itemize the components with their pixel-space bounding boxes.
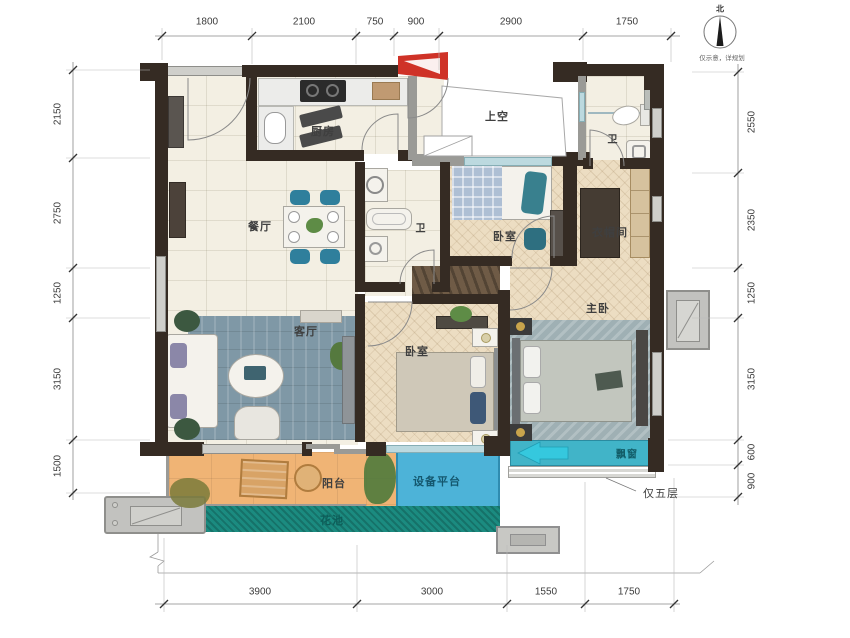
dim-left-5: 1500	[53, 455, 64, 477]
dim-left-1: 2150	[53, 103, 64, 125]
dim-top-6: 1750	[616, 17, 638, 28]
plan-linework	[0, 0, 850, 638]
bay-window-arrow-icon	[518, 442, 568, 464]
break-lines	[150, 534, 714, 573]
extension-lines	[66, 28, 744, 612]
ac-symbols	[132, 303, 698, 524]
room-label-equipment: 设备平台	[413, 473, 461, 489]
dim-left-2: 2750	[53, 202, 64, 224]
compass-north-label: 北	[716, 4, 724, 15]
room-label-bath-mid: 卫	[416, 220, 427, 235]
room-label-closet: 衣帽间	[592, 224, 628, 240]
entry-arrow-icon	[398, 52, 448, 80]
dim-top-5: 2900	[500, 17, 522, 28]
dim-bottom-1: 3900	[249, 587, 271, 598]
dim-top-3: 750	[367, 17, 384, 28]
dim-right-3: 1250	[747, 282, 758, 304]
room-label-bedroom-second: 卧室	[405, 343, 429, 359]
room-label-flower-bed: 花池	[320, 512, 344, 528]
dim-top-2: 2100	[293, 17, 315, 28]
room-label-dining: 餐厅	[248, 218, 272, 234]
room-label-living: 客厅	[294, 323, 318, 339]
floor-note-leader	[606, 478, 636, 491]
dim-bottom-3: 1550	[535, 587, 557, 598]
dim-right-2: 2350	[747, 209, 758, 231]
room-label-bedroom-top: 卧室	[493, 228, 517, 244]
dim-top-1: 1800	[196, 17, 218, 28]
room-label-balcony: 阳台	[322, 475, 346, 491]
room-label-bath-top: 卫	[608, 131, 619, 146]
dim-right-1: 2550	[747, 111, 758, 133]
compass-icon	[704, 16, 736, 48]
dim-left-4: 3150	[53, 368, 64, 390]
dim-right-6: 900	[747, 473, 758, 490]
dim-left-3: 1250	[53, 282, 64, 304]
room-label-master: 主卧	[586, 300, 610, 316]
dimension-lines	[73, 36, 738, 604]
room-label-kitchen: 厨房	[311, 123, 335, 139]
floor-note-label: 仅五层	[643, 485, 679, 501]
dim-right-5: 600	[747, 444, 758, 461]
dim-bottom-2: 3000	[421, 587, 443, 598]
room-label-bay-window: 飘窗	[616, 446, 638, 461]
dim-right-4: 3150	[747, 368, 758, 390]
dim-bottom-4: 1750	[618, 587, 640, 598]
dim-top-4: 900	[408, 17, 425, 28]
compass-note: 仅示意，详规划	[699, 52, 745, 62]
dimension-ticks	[69, 32, 742, 608]
floor-plan-canvas: 厨房 上空 卫 餐厅 卫 卧室 衣帽间 主卧 客厅 卧室 阳台 设备平台 花池 …	[0, 0, 850, 638]
room-label-void: 上空	[485, 108, 509, 124]
